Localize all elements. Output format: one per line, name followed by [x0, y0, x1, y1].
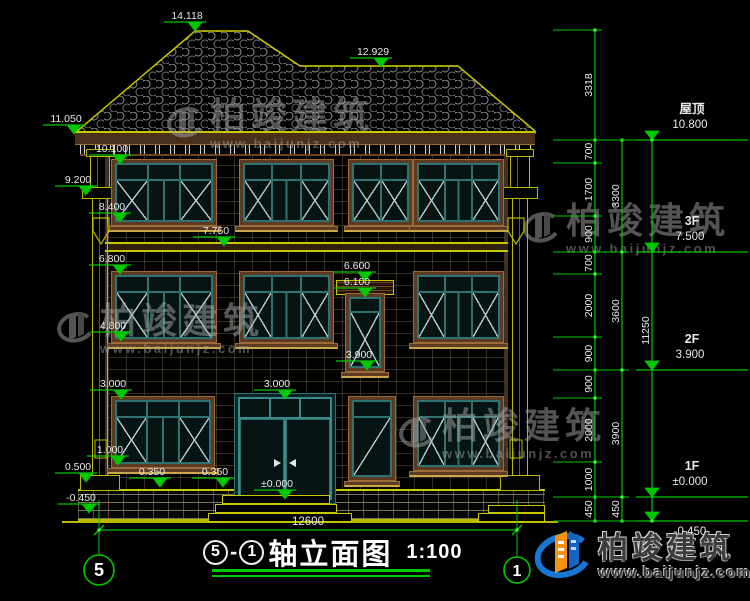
pilaster-bracket [510, 440, 522, 458]
dim-node [594, 336, 597, 339]
title-scale: 1:100 [406, 541, 462, 564]
level-triangle [278, 490, 292, 499]
level-triangle [153, 478, 167, 487]
elevation-value: 11.050 [50, 113, 81, 125]
level-label: 3F [685, 214, 700, 228]
brand-logo: 柏竣建筑 www.baijunjz.com [528, 524, 750, 590]
level-triangle [216, 478, 230, 487]
dim-value: 2000 [583, 294, 595, 318]
axis-bubble-number: 1 [513, 563, 522, 580]
pilaster-shield-ornament [93, 218, 109, 244]
drawing-title: 5 - 1 轴立面图 1:100 [203, 531, 463, 573]
level-triangle [67, 125, 81, 134]
elevation-value: 10.100 [96, 143, 128, 155]
brand-logo-icon [528, 524, 590, 590]
dim-value: 450 [583, 500, 595, 518]
dim-value: 1000 [583, 468, 595, 492]
pilaster-shield-ornament [508, 218, 524, 244]
dim-value: 3318 [583, 73, 595, 97]
elevation-value: 12.929 [357, 46, 389, 58]
elevation-value: 3.900 [676, 349, 705, 361]
level-triangle [360, 361, 374, 370]
dim-node [594, 162, 597, 165]
title-axis-bubble-start: 5 [203, 540, 228, 565]
dim-node [594, 215, 597, 218]
level-triangle [358, 288, 372, 297]
elevation-value: 1.000 [97, 444, 123, 456]
elevation-value: 3.900 [346, 349, 372, 361]
level-triangle [188, 22, 202, 31]
dim-node [621, 496, 624, 499]
dim-node [594, 29, 597, 32]
dim-value: 900 [583, 225, 595, 243]
level-triangle [113, 155, 127, 164]
dim-value: 900 [583, 375, 595, 393]
elevation-value: 10.800 [672, 119, 707, 131]
level-triangle [111, 456, 125, 465]
dim-value: 700 [583, 143, 595, 161]
dim-node [621, 251, 624, 254]
elevation-value: 8.400 [99, 201, 125, 213]
title-axis-bubble-end: 1 [239, 540, 264, 565]
dim-value: 2000 [583, 418, 595, 442]
elevation-value: 3.000 [264, 378, 290, 390]
dim-value: 3900 [610, 422, 622, 446]
dim-value: 3300 [610, 184, 622, 208]
elevation-value: 6.800 [99, 253, 125, 265]
dim-value: 3600 [610, 299, 622, 323]
level-triangle [113, 265, 127, 274]
level-triangle [278, 390, 292, 399]
overall-width-dim: 12600 [292, 516, 324, 528]
elevation-value: 14.118 [171, 10, 202, 22]
elevation-drawing-canvas: 14.11812.92911.05010.1009.2008.4007.7506… [0, 0, 750, 601]
elevation-value: 0.350 [139, 466, 165, 478]
brand-logo-site: www.baijunjz.com [598, 564, 750, 581]
level-label: 1F [685, 459, 700, 473]
title-underline [212, 569, 430, 572]
elevation-value: 0.350 [202, 466, 228, 478]
level-triangle [114, 332, 128, 341]
dim-node [594, 461, 597, 464]
dim-node [98, 529, 101, 532]
level-triangle [114, 390, 128, 399]
level-triangle [374, 58, 388, 67]
elevation-value: 4.800 [100, 320, 126, 332]
elevation-value: 6.600 [344, 260, 370, 272]
elevation-value: -0.450 [66, 492, 96, 504]
axis-bubble-number: 5 [94, 560, 104, 580]
elevation-value: ±0.000 [672, 476, 707, 488]
elevation-value: 0.500 [65, 461, 91, 473]
dim-node [594, 273, 597, 276]
elevation-value: 3.000 [100, 378, 126, 390]
level-label: 屋顶 [679, 101, 705, 116]
level-triangle [79, 473, 93, 482]
level-label: 2F [685, 332, 700, 346]
title-axis-dash: - [230, 539, 237, 565]
dim-node [621, 369, 624, 372]
elevation-value: 6.100 [344, 276, 370, 288]
dim-value: 11250 [640, 316, 652, 345]
level-triangle [82, 504, 96, 513]
elevation-value: ±0.000 [261, 478, 293, 490]
elevation-value: 9.200 [65, 174, 91, 186]
dimension-annotations: 14.11812.92911.05010.1009.2008.4007.7506… [0, 0, 750, 601]
elevation-value: 7.750 [203, 225, 229, 237]
dim-value: 700 [583, 254, 595, 272]
dim-node [516, 529, 519, 532]
brand-logo-name: 柏竣建筑 [598, 533, 750, 565]
dim-node [594, 397, 597, 400]
dim-node [651, 139, 654, 142]
elevation-value: 7.500 [676, 231, 705, 243]
title-underline-2 [212, 575, 430, 577]
level-triangle [113, 213, 127, 222]
level-triangle [217, 237, 231, 246]
dim-value: 900 [583, 345, 595, 363]
dim-value: 1700 [583, 178, 595, 202]
level-triangle [79, 186, 93, 195]
dim-value: 450 [610, 500, 622, 518]
dim-node [651, 520, 654, 523]
title-name: 轴立面图 [268, 531, 392, 573]
